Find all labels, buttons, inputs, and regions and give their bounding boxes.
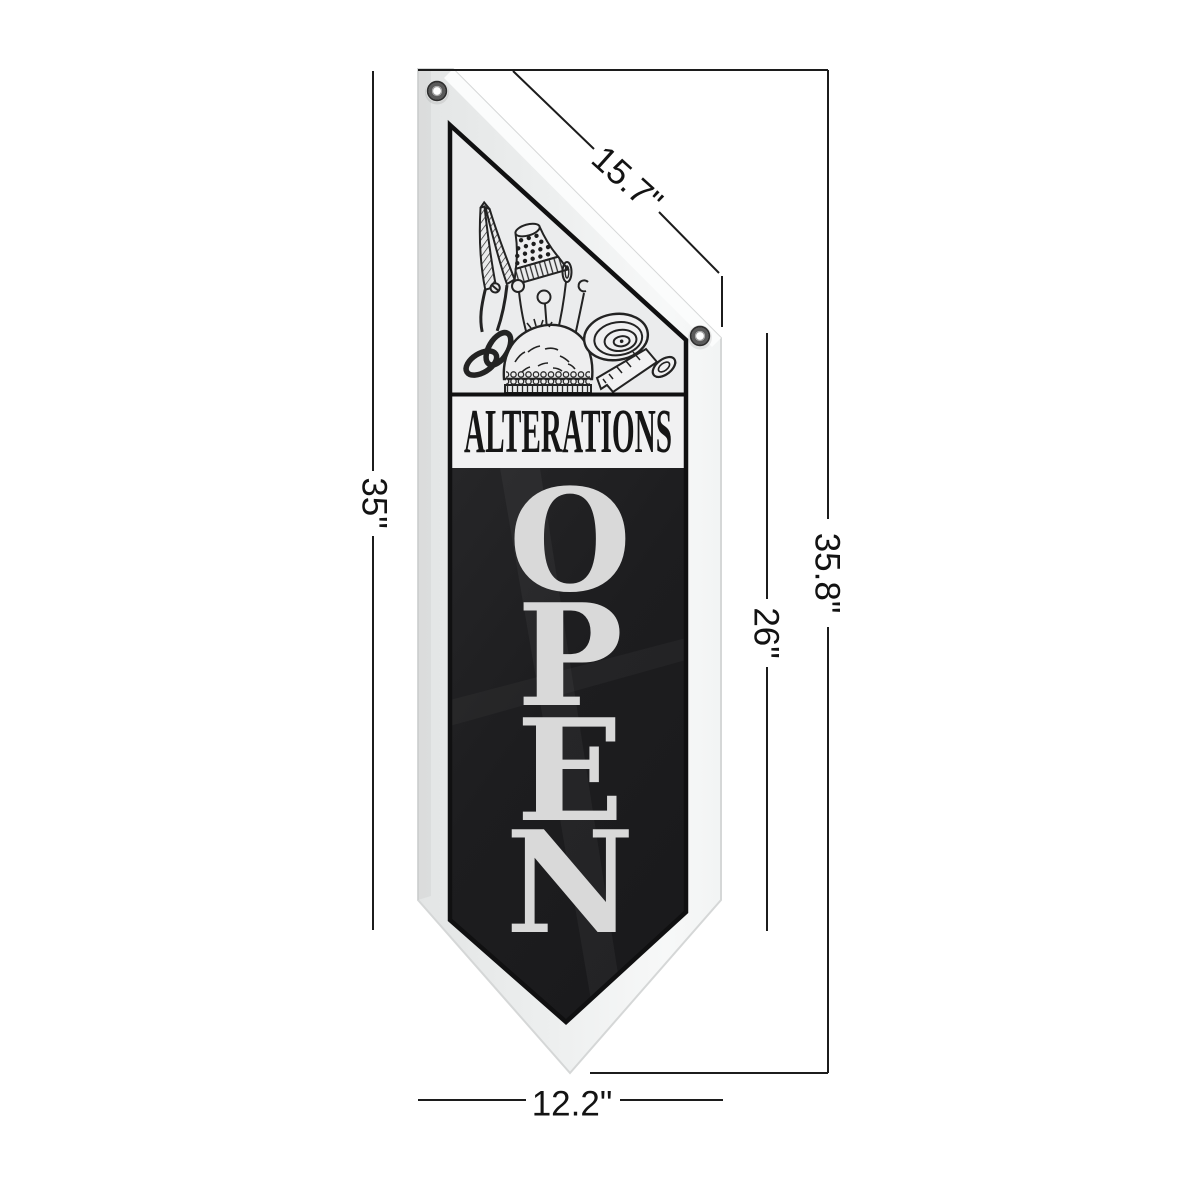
dim-label-top-diagonal: 15.7" [584,139,670,222]
product-image: ALTERATIONS O P E N [0,0,1200,1200]
dim-label-right-inner-height: 26" [747,607,786,658]
dim-label-bottom-width: 12.2" [532,1085,613,1124]
dim-label-right-total-height: 35.8" [808,533,847,614]
left-edge-shade [418,69,431,900]
dim-label-left-height: 35" [355,477,394,528]
open-letter-n: N [506,801,635,966]
open-word: O P E N [506,459,635,966]
banner: ALTERATIONS O P E N [418,69,721,1073]
banner-heading: ALTERATIONS [464,398,672,466]
banner-diagram: ALTERATIONS O P E N [0,0,1200,1200]
